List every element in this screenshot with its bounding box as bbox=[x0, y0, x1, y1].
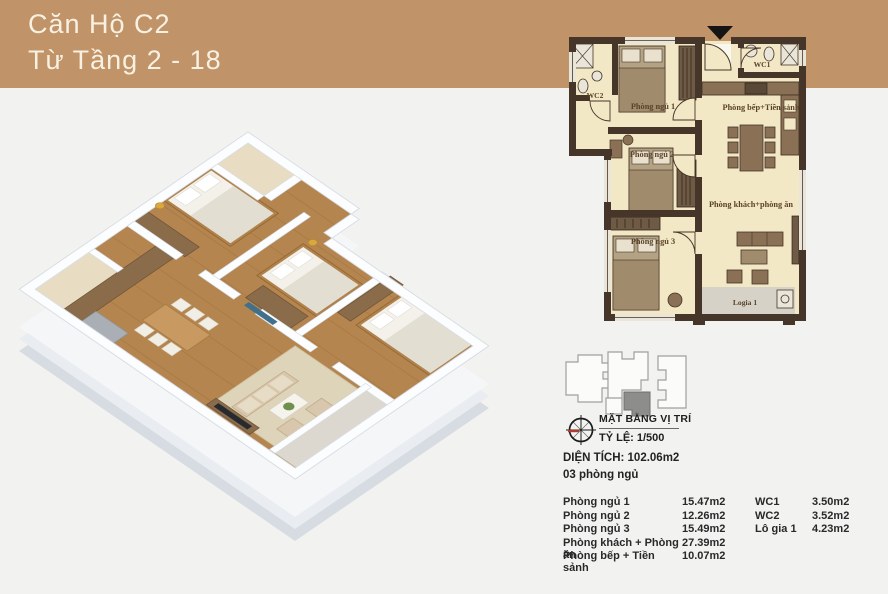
summary-block: DIỆN TÍCH: 102.06m2 03 phòng ngủ bbox=[563, 452, 679, 481]
room-name: Phòng bếp + Tiền sảnh bbox=[563, 550, 682, 564]
legend-row: Lô gia 14.23m2 bbox=[755, 523, 849, 537]
room-area: 27.39m2 bbox=[682, 537, 725, 551]
label-bedroom3: Phòng ngủ 3 bbox=[631, 237, 675, 246]
room-name: WC2 bbox=[755, 510, 812, 524]
label-logia: Logia 1 bbox=[733, 298, 757, 307]
room-name: Lô gia 1 bbox=[755, 523, 812, 537]
tower-middle-annex bbox=[606, 398, 622, 414]
tower-left bbox=[566, 355, 614, 402]
legend-row: WC23.52m2 bbox=[755, 510, 849, 524]
floor-plan-2d: WC2 Phòng ngủ 1 WC1 Phòng bếp+Tiền sảnh … bbox=[555, 20, 865, 335]
plan-dining-set bbox=[728, 125, 775, 171]
legend-row: Phòng bếp + Tiền sảnh10.07m2 bbox=[563, 550, 725, 564]
apartment-3d-view bbox=[0, 0, 555, 594]
plan-bed-3 bbox=[613, 236, 659, 310]
bedroom-count: 03 phòng ngủ bbox=[563, 469, 679, 481]
map-scale: TỶ LỆ: 1/500 bbox=[599, 432, 679, 444]
tower-right bbox=[658, 356, 686, 408]
room-name: Phòng khách + Phòng ăn bbox=[563, 537, 682, 551]
legend-left-column: Phòng ngủ 115.47m2 Phòng ngủ 212.26m2 Ph… bbox=[563, 496, 725, 564]
legend-row: Phòng ngủ 212.26m2 bbox=[563, 510, 725, 524]
brochure-page: Căn Hộ C2 Từ Tầng 2 - 18 bbox=[0, 0, 888, 594]
map-title-block: MẶT BẰNG VỊ TRÍ TỶ LỆ: 1/500 bbox=[599, 413, 679, 444]
legend-row: Phòng ngủ 115.47m2 bbox=[563, 496, 725, 510]
entrance-marker bbox=[707, 26, 733, 40]
room-area: 15.49m2 bbox=[682, 523, 725, 537]
room-name: Phòng ngủ 2 bbox=[563, 510, 682, 524]
label-living: Phòng khách+phòng ăn bbox=[709, 200, 793, 209]
legend-row: Phòng khách + Phòng ăn27.39m2 bbox=[563, 537, 725, 551]
room-area: 3.52m2 bbox=[812, 510, 849, 524]
room-area: 10.07m2 bbox=[682, 550, 725, 564]
room-area: 15.47m2 bbox=[682, 496, 725, 510]
location-minimap bbox=[556, 346, 696, 418]
total-area: DIỆN TÍCH: 102.06m2 bbox=[563, 452, 679, 464]
label-kitchen: Phòng bếp+Tiền sảnh bbox=[723, 103, 800, 112]
plan-tv-unit bbox=[792, 216, 799, 264]
plan-side-table-3 bbox=[668, 293, 682, 307]
label-wc1: WC1 bbox=[754, 60, 771, 69]
label-bedroom1: Phòng ngủ 1 bbox=[631, 102, 675, 111]
legend-row: WC13.50m2 bbox=[755, 496, 849, 510]
plan-washing-machine bbox=[777, 290, 793, 308]
room-name: WC1 bbox=[755, 496, 812, 510]
room-area: 12.26m2 bbox=[682, 510, 725, 524]
map-title: MẶT BẰNG VỊ TRÍ bbox=[599, 413, 679, 429]
label-wc2: WC2 bbox=[587, 91, 604, 100]
room-name: Phòng ngủ 3 bbox=[563, 523, 682, 537]
room-name: Phòng ngủ 1 bbox=[563, 496, 682, 510]
legend-row: Phòng ngủ 315.49m2 bbox=[563, 523, 725, 537]
room-area: 4.23m2 bbox=[812, 523, 849, 537]
compass-icon bbox=[564, 413, 598, 447]
plan-wardrobe-1 bbox=[679, 46, 696, 100]
label-bedroom2: Phòng ngủ 2 bbox=[630, 150, 674, 159]
room-area: 3.50m2 bbox=[812, 496, 849, 510]
legend-right-column: WC13.50m2 WC23.52m2 Lô gia 14.23m2 bbox=[755, 496, 849, 537]
plan-wardrobe-3 bbox=[610, 217, 660, 230]
